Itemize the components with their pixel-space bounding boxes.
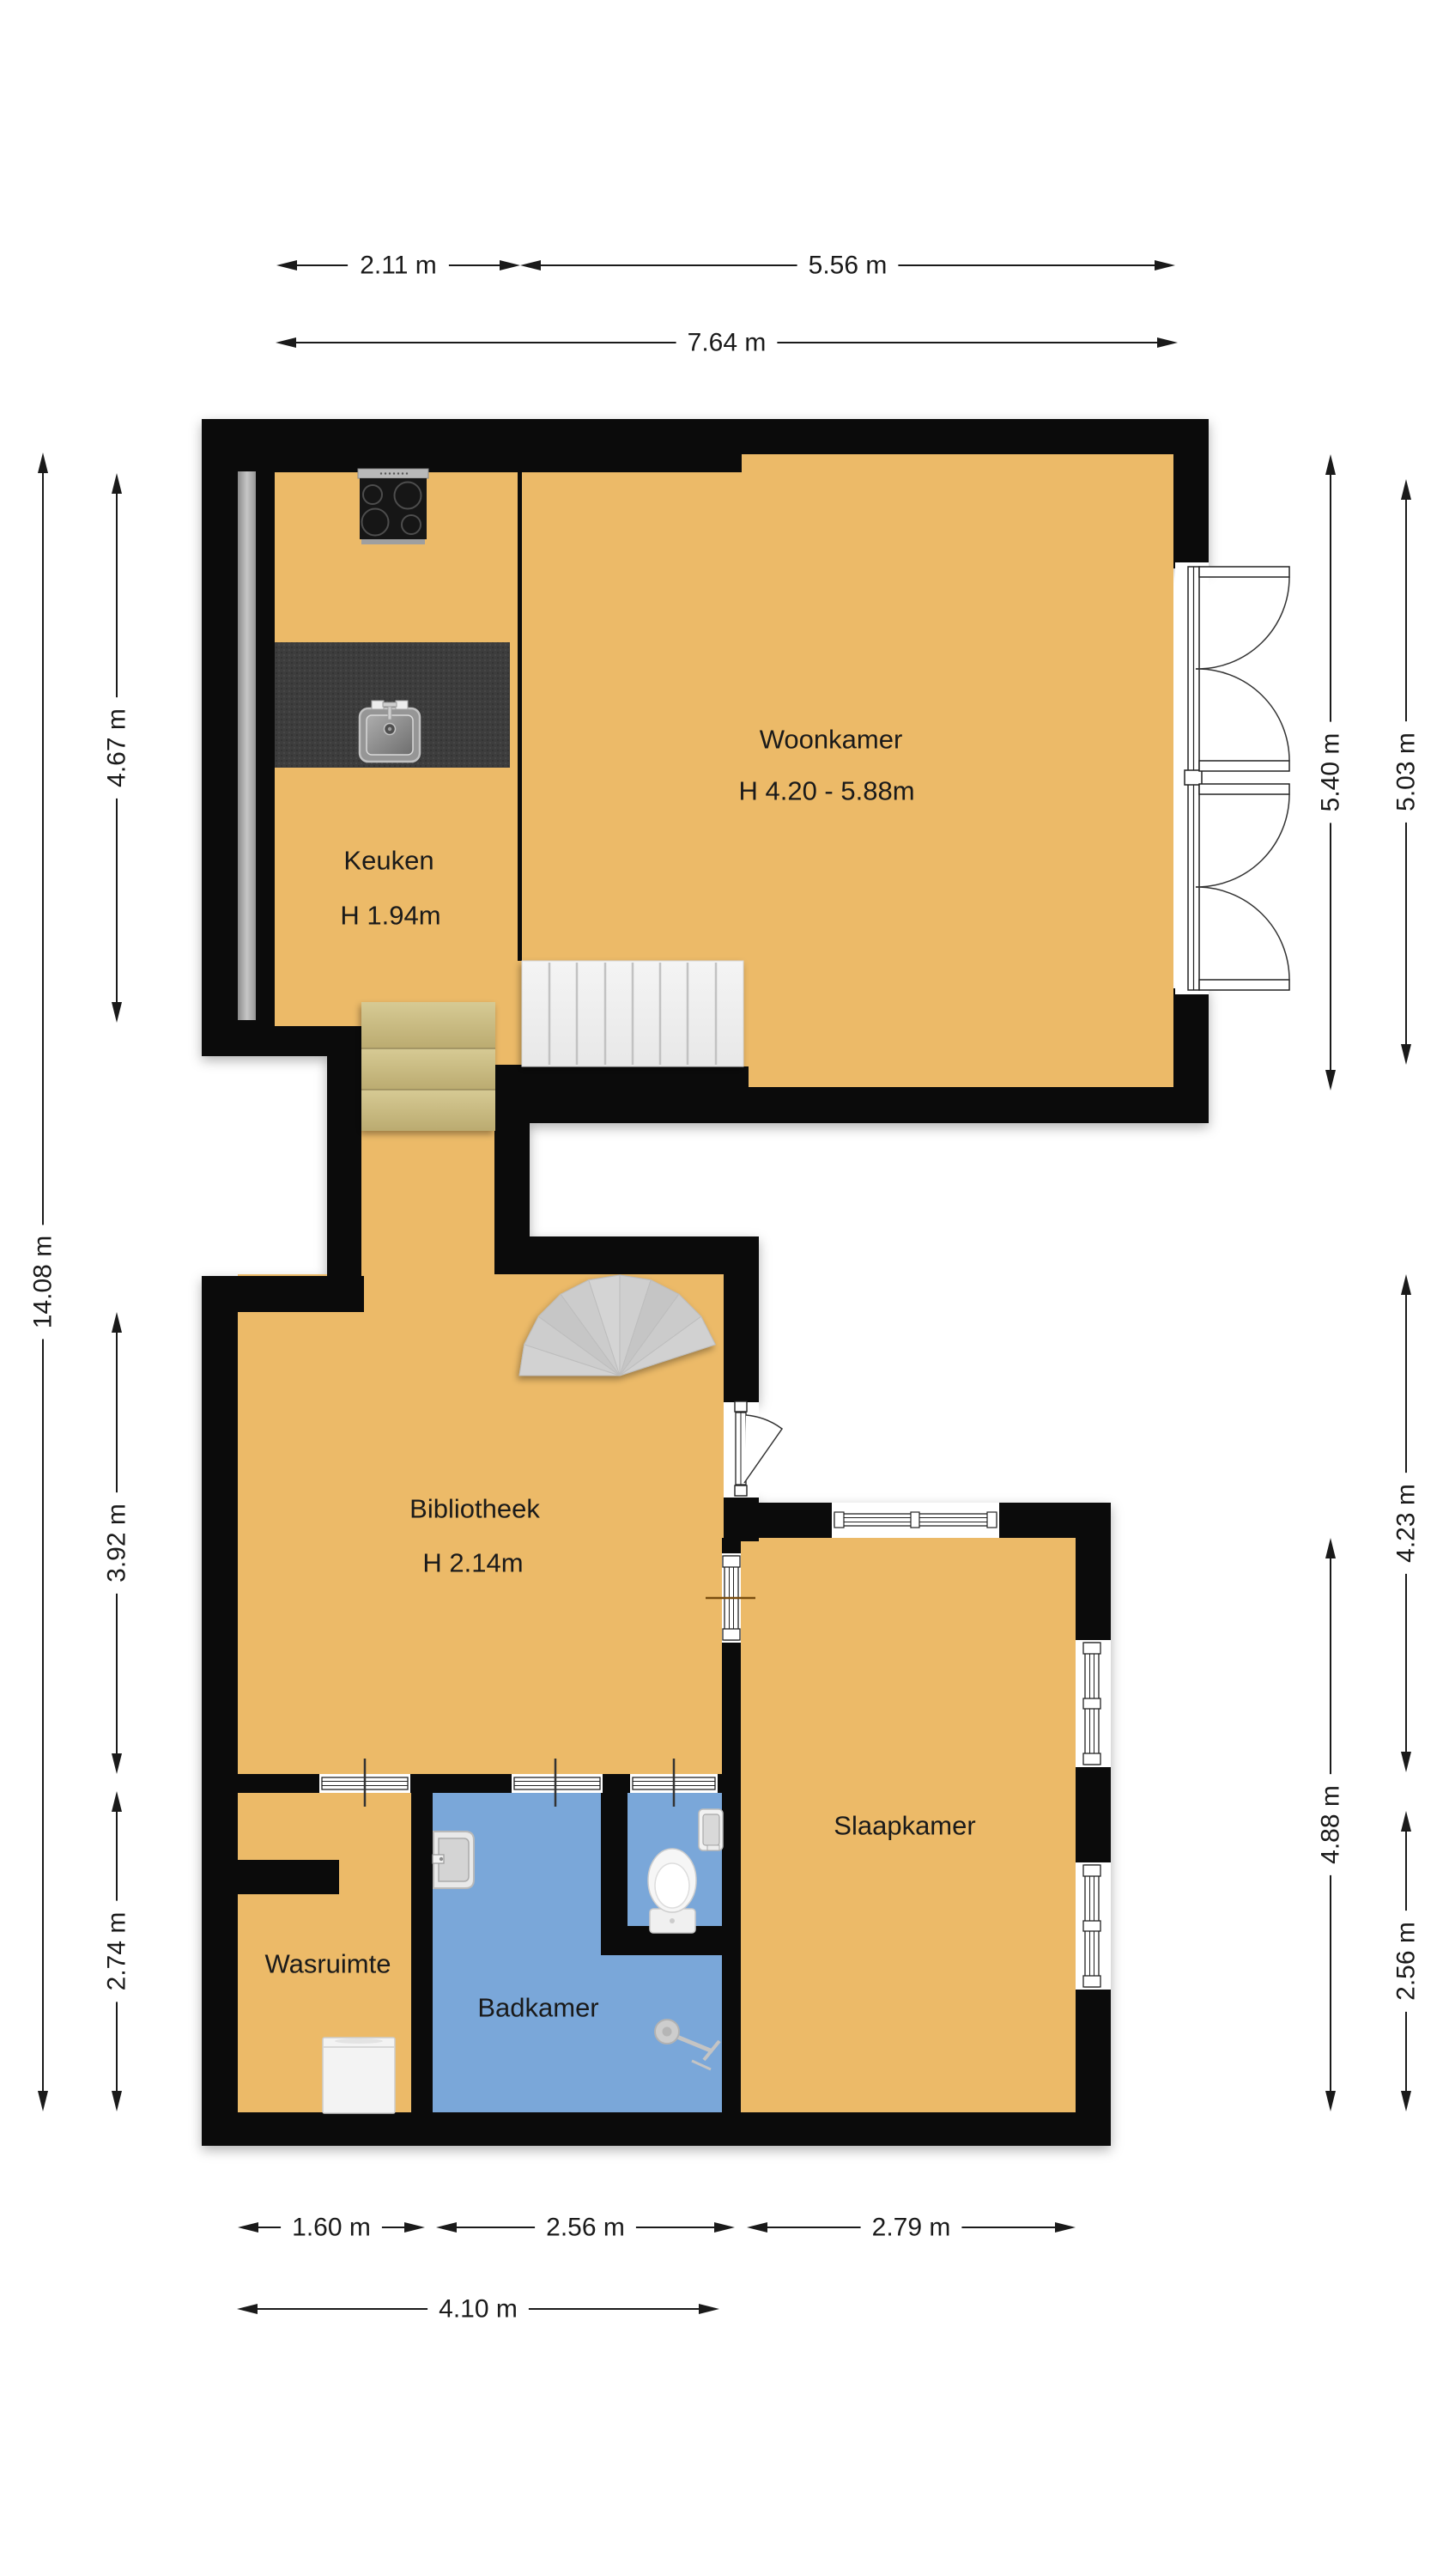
svg-text:4.23 m: 4.23 m — [1392, 1484, 1421, 1563]
svg-text:1.60 m: 1.60 m — [292, 2214, 371, 2242]
svg-text:4.10 m: 4.10 m — [439, 2295, 518, 2324]
svg-text:2.74 m: 2.74 m — [103, 1912, 131, 1991]
svg-text:5.03 m: 5.03 m — [1392, 732, 1421, 811]
svg-text:H 1.94m: H 1.94m — [340, 901, 440, 931]
svg-text:H 2.14m: H 2.14m — [422, 1548, 523, 1578]
svg-text:2.79 m: 2.79 m — [872, 2214, 951, 2242]
svg-text:14.08 m: 14.08 m — [29, 1236, 58, 1328]
svg-text:2.56 m: 2.56 m — [546, 2214, 625, 2242]
svg-text:3.92 m: 3.92 m — [103, 1504, 131, 1583]
svg-text:H 4.20 - 5.88m: H 4.20 - 5.88m — [738, 776, 914, 806]
svg-text:Woonkamer: Woonkamer — [760, 725, 903, 755]
svg-text:2.56 m: 2.56 m — [1392, 1922, 1421, 2001]
svg-text:5.40 m: 5.40 m — [1317, 733, 1345, 812]
svg-text:Bibliotheek: Bibliotheek — [409, 1494, 540, 1524]
svg-text:Badkamer: Badkamer — [477, 1993, 598, 2023]
svg-text:Slaapkamer: Slaapkamer — [834, 1811, 975, 1841]
svg-text:2.11 m: 2.11 m — [360, 252, 437, 280]
svg-text:Keuken: Keuken — [343, 846, 433, 876]
svg-text:7.64 m: 7.64 m — [688, 329, 767, 357]
svg-text:Wasruimte: Wasruimte — [265, 1949, 391, 1979]
svg-text:4.88 m: 4.88 m — [1317, 1785, 1345, 1864]
svg-text:5.56 m: 5.56 m — [809, 252, 888, 280]
svg-text:4.67 m: 4.67 m — [103, 708, 131, 787]
